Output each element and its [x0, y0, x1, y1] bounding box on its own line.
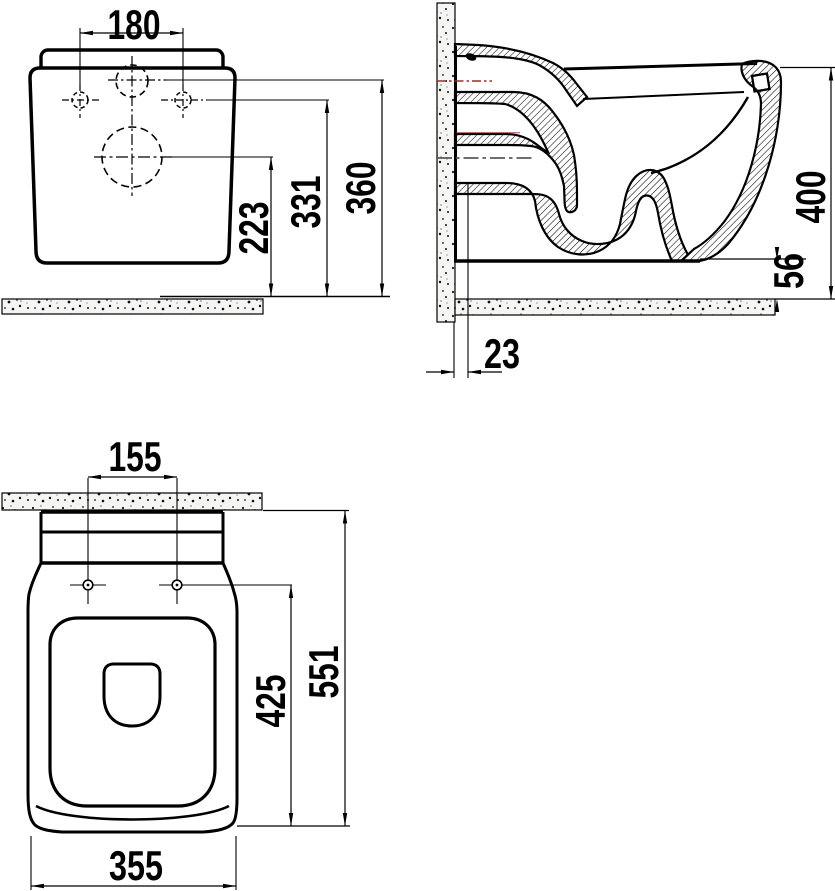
top-view: 155 425 551 355: [2, 433, 350, 890]
dimension-label-180: 180: [108, 1, 161, 48]
technical-drawing-page: 180 223 331 360: [0, 0, 835, 891]
far-rim-inner-edge: [583, 92, 744, 99]
toilet-dimension-drawing: 180 223 331 360: [0, 0, 835, 891]
top-body-outline: [28, 563, 237, 832]
seat-hole-right: [159, 566, 196, 604]
front-rim-wall: [681, 61, 781, 261]
bowl-opening-outline: [104, 664, 160, 726]
dimension-label-360: 360: [337, 162, 384, 215]
floor-section: [455, 299, 775, 315]
dimension-355: 355: [31, 836, 236, 890]
arrow-left: [80, 31, 93, 35]
front-floor-strip: [2, 299, 263, 314]
dimension-label-223: 223: [230, 202, 277, 255]
top-front-edge-arc: [36, 806, 229, 820]
dimension-label-155: 155: [109, 433, 162, 480]
rim-top-edge: [564, 64, 757, 70]
dimension-331: 331: [282, 100, 329, 297]
dimension-223: 223: [230, 157, 277, 297]
dimension-425: 425: [237, 585, 350, 826]
dimension-label-355: 355: [109, 842, 163, 889]
top-wall-strip: [2, 493, 262, 510]
dimension-label-331: 331: [282, 176, 329, 229]
rim-channel-hole: [752, 74, 770, 92]
dimension-label-551: 551: [300, 646, 347, 699]
dimension-360: 360: [337, 80, 384, 297]
bowl-surface-curve: [651, 97, 748, 173]
dimension-label-425: 425: [247, 675, 294, 728]
seat-outline: [50, 618, 215, 806]
wall-section: [437, 3, 455, 322]
front-view: 180 223 331 360: [2, 1, 390, 314]
seat-hole-left: [70, 566, 106, 604]
side-section-view: 400 56 23: [426, 3, 835, 378]
dimension-label-56: 56: [765, 253, 812, 289]
dimension-label-400: 400: [787, 171, 834, 224]
dimension-label-23: 23: [484, 330, 520, 377]
arrow-right: [170, 31, 183, 35]
dimension-551: 551: [300, 511, 347, 827]
